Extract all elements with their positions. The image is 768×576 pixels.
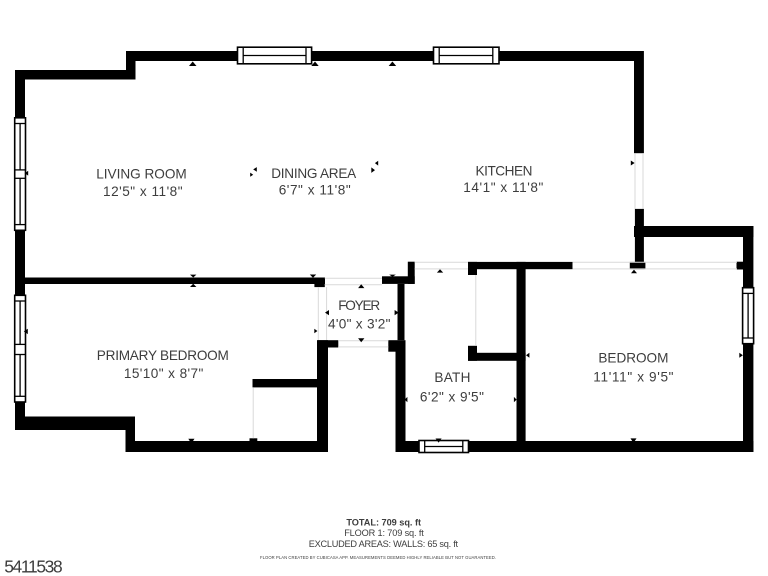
svg-text:KITCHEN: KITCHEN: [476, 163, 533, 178]
svg-text:6'7" x 11'8": 6'7" x 11'8": [279, 183, 351, 198]
svg-text:LIVING ROOM: LIVING ROOM: [96, 166, 187, 181]
svg-text:TOTAL: 709 sq. ft: TOTAL: 709 sq. ft: [346, 517, 421, 527]
svg-text:14'1" x 11'8": 14'1" x 11'8": [463, 180, 543, 195]
svg-text:EXCLUDED AREAS: WALLS: 65 sq.: EXCLUDED AREAS: WALLS: 65 sq. ft: [309, 539, 459, 549]
svg-text:FOYER: FOYER: [338, 298, 380, 313]
svg-text:BATH: BATH: [434, 370, 470, 385]
svg-text:11'11" x 9'5": 11'11" x 9'5": [593, 369, 673, 384]
svg-text:12'5" x 11'8": 12'5" x 11'8": [103, 184, 183, 199]
svg-text:PRIMARY BEDROOM: PRIMARY BEDROOM: [97, 348, 229, 363]
svg-text:5411538: 5411538: [4, 556, 63, 576]
svg-text:FLOOR 1: 709 sq. ft: FLOOR 1: 709 sq. ft: [344, 528, 424, 538]
svg-text:15'10" x 8'7": 15'10" x 8'7": [124, 366, 204, 381]
svg-text:FLOOR PLAN CREATED BY CUBICASA: FLOOR PLAN CREATED BY CUBICASA APP. MEAS…: [260, 555, 496, 560]
svg-text:6'2" x 9'5": 6'2" x 9'5": [420, 389, 484, 404]
svg-text:DINING AREA: DINING AREA: [271, 166, 357, 181]
svg-text:4'0" x 3'2": 4'0" x 3'2": [328, 317, 391, 332]
svg-text:BEDROOM: BEDROOM: [598, 351, 668, 366]
